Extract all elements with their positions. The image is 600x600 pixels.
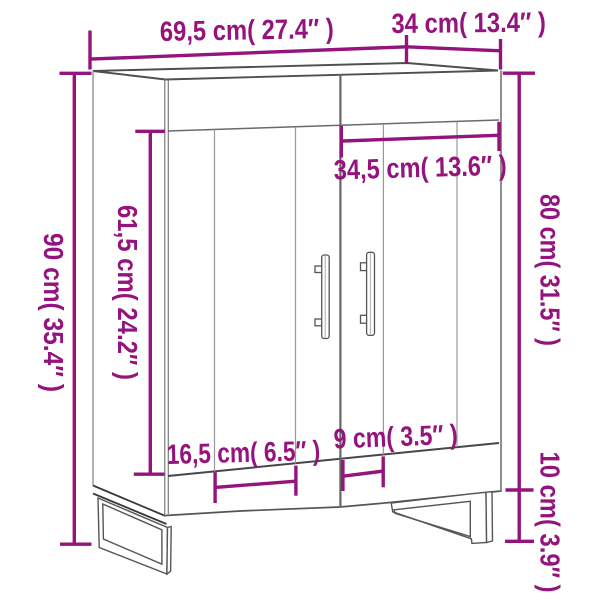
svg-text:9 cm( 3.5″ ): 9 cm( 3.5″ ) <box>333 419 458 455</box>
svg-text:10 cm( 3.9″ ): 10 cm( 3.9″ ) <box>535 452 566 593</box>
svg-text:80 cm( 31.5″ ): 80 cm( 31.5″ ) <box>535 194 566 346</box>
svg-text:34,5 cm( 13.6″ ): 34,5 cm( 13.6″ ) <box>333 150 507 186</box>
svg-text:90 cm( 35.4″ ): 90 cm( 35.4″ ) <box>38 233 69 392</box>
svg-text:34 cm( 13.4″ ): 34 cm( 13.4″ ) <box>391 7 546 39</box>
svg-text:16,5 cm( 6.5″ ): 16,5 cm( 6.5″ ) <box>166 435 320 470</box>
svg-text:69,5 cm( 27.4″ ): 69,5 cm( 27.4″ ) <box>160 13 335 47</box>
svg-text:61,5 cm( 24.2″ ): 61,5 cm( 24.2″ ) <box>112 205 143 380</box>
